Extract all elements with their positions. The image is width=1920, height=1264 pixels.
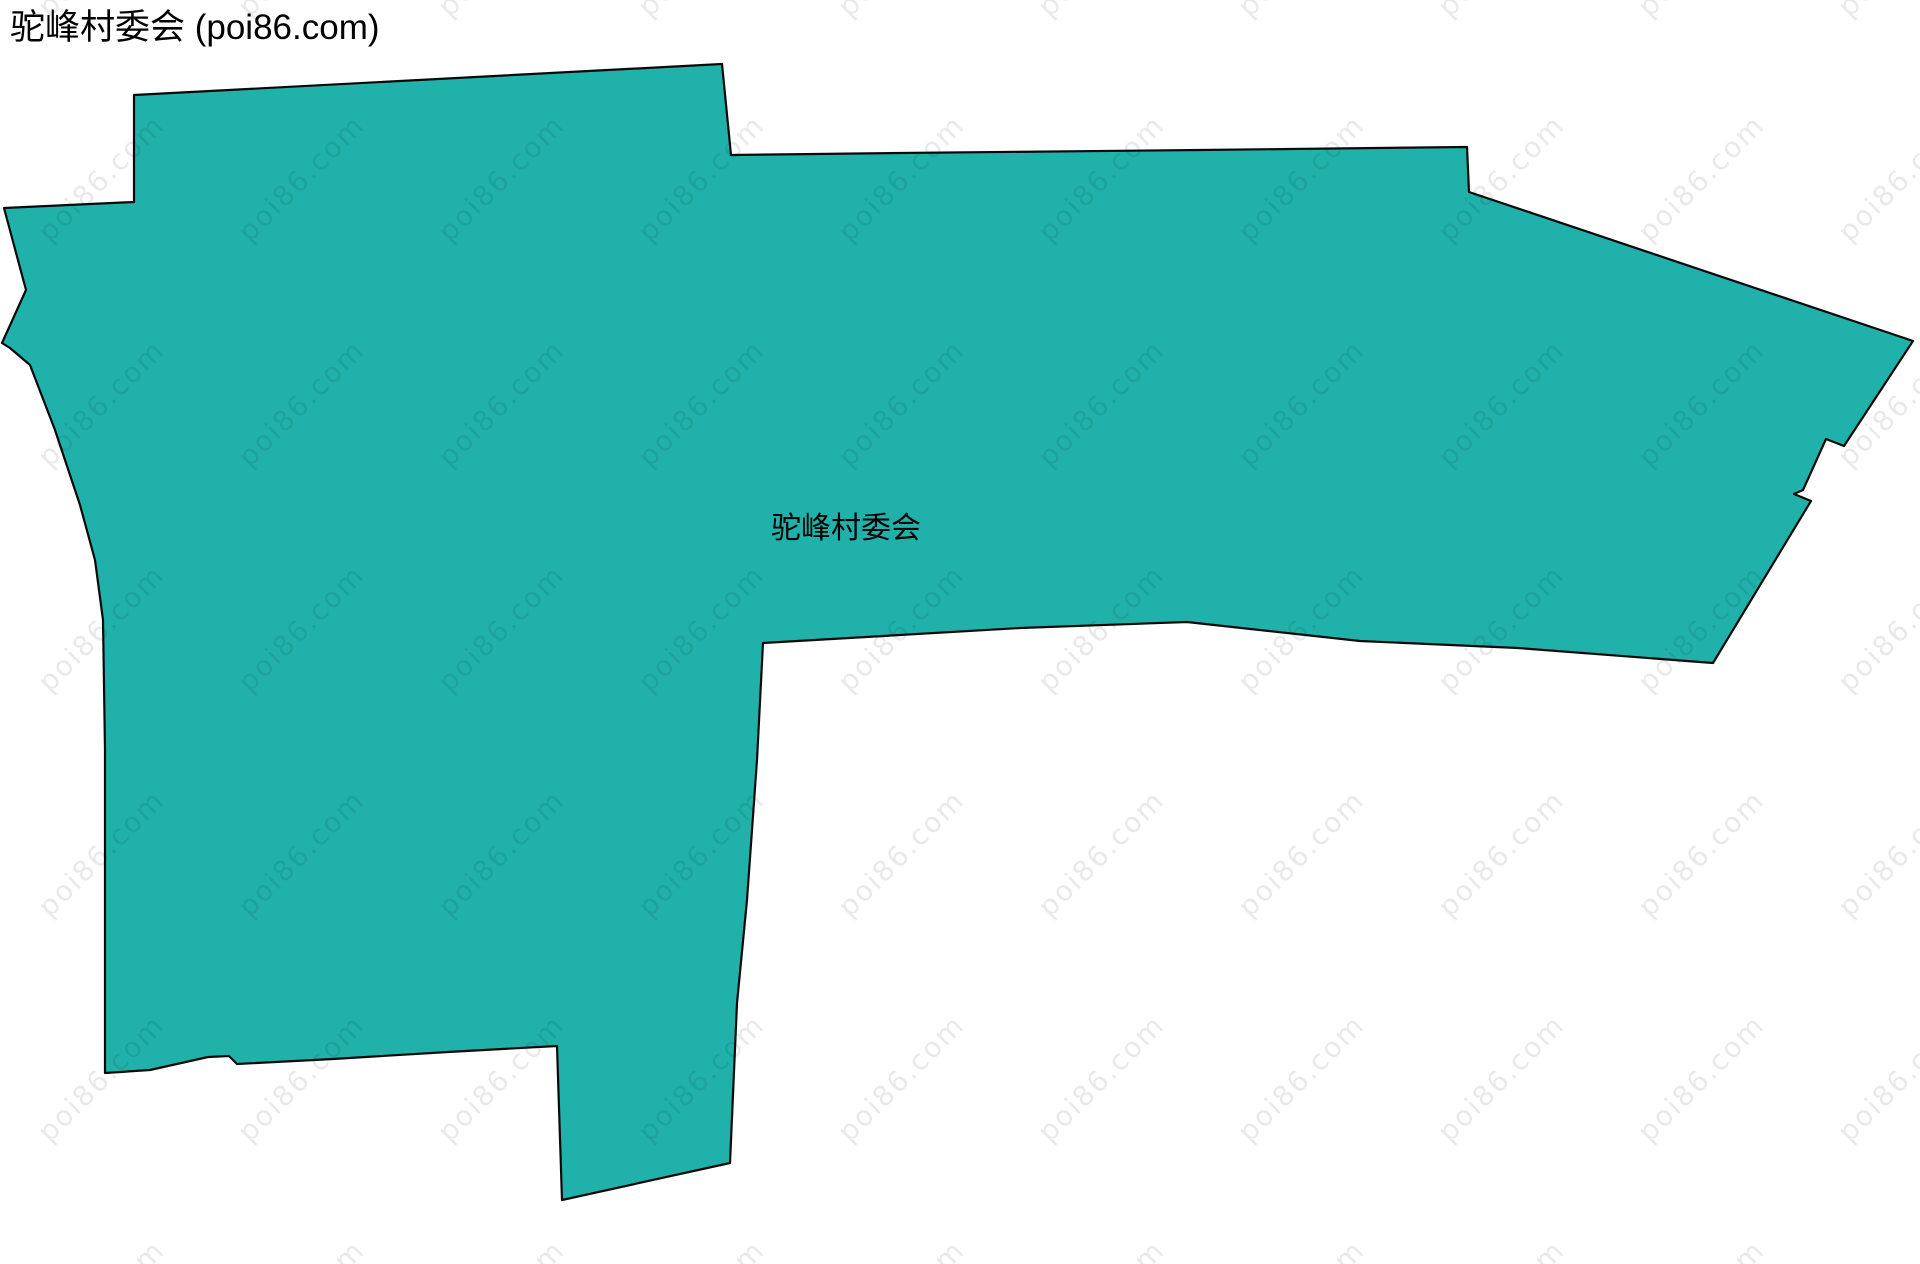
page-title: 驼峰村委会 (poi86.com) bbox=[10, 6, 380, 50]
region-polygon bbox=[2, 64, 1913, 1200]
region-map: poi86.com 驼峰村委会 bbox=[0, 0, 1920, 1264]
map-page: 驼峰村委会 (poi86.com) poi86.com 驼峰村委会 bbox=[0, 0, 1920, 1264]
region-label: 驼峰村委会 bbox=[771, 512, 921, 545]
